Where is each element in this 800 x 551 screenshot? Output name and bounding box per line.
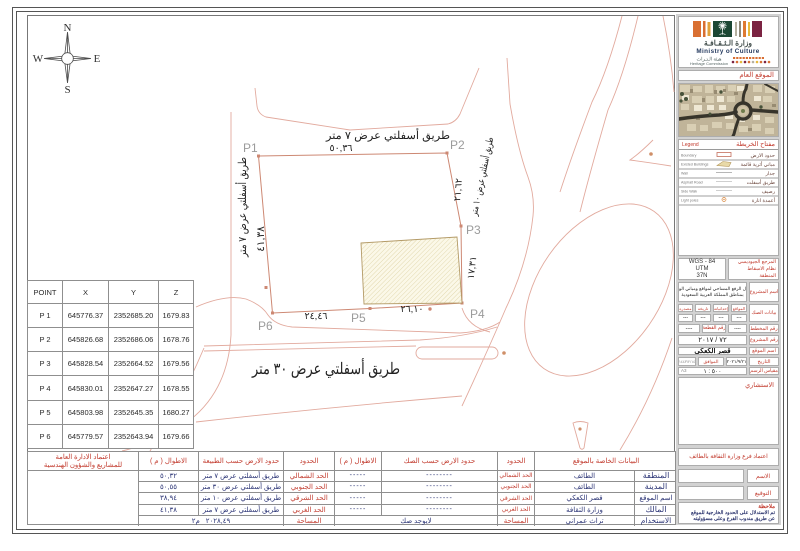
svg-text:Wall: Wall (681, 172, 688, 176)
svg-text:Ministry of Culture: Ministry of Culture (696, 48, 759, 55)
svg-text:Asphalt Road: Asphalt Road (681, 181, 703, 185)
svg-text:Boundary: Boundary (681, 154, 697, 158)
svg-text:أعمدة انارة: أعمدة انارة (752, 196, 776, 204)
svg-text:طريق أسفلتي عرض ١٠ متر: طريق أسفلتي عرض ١٠ متر (467, 135, 497, 217)
svg-text:جدار: جدار (764, 171, 775, 177)
svg-text:٢٦,١٠: ٢٦,١٠ (400, 304, 423, 315)
svg-text:Existed Buildings: Existed Buildings (681, 163, 709, 167)
svg-text:طريق أسفلت: طريق أسفلت (747, 178, 775, 186)
svg-text:P4: P4 (470, 307, 485, 321)
svg-text:١٧,٣١: ١٧,٣١ (466, 256, 480, 280)
svg-text:N: N (64, 22, 72, 34)
svg-text:طريق أسفلتي عرض ٧ متر: طريق أسفلتي عرض ٧ متر (235, 157, 249, 258)
svg-text:P3: P3 (466, 223, 481, 237)
svg-text:S: S (64, 84, 70, 96)
svg-text:٤١,٣٨: ٤١,٣٨ (255, 226, 267, 252)
svg-text:وزارة الـثـقـافـة: وزارة الـثـقـافـة (704, 39, 752, 49)
svg-text:P2: P2 (450, 138, 465, 152)
svg-text:E: E (94, 53, 101, 65)
svg-text:W: W (33, 53, 44, 65)
svg-text:٥٠,٣٦: ٥٠,٣٦ (329, 143, 352, 154)
svg-text:حدود الارض: حدود الارض (751, 153, 775, 159)
svg-text:Light poles: Light poles (681, 199, 699, 203)
svg-text:طريق أسفلتي عرض ٧ متر: طريق أسفلتي عرض ٧ متر (325, 128, 450, 142)
svg-text:Side Walk: Side Walk (681, 190, 697, 194)
svg-text:P1: P1 (243, 141, 258, 155)
svg-text:مباني أثرية قائمة: مباني أثرية قائمة (740, 160, 775, 168)
svg-text:P5: P5 (351, 311, 366, 325)
svg-text:Heritage Commission: Heritage Commission (690, 61, 728, 66)
svg-text:P6: P6 (258, 319, 273, 333)
svg-text:٢١,٦٢: ٢١,٦٢ (452, 178, 465, 202)
svg-text:طريق أسفلتي عرض ٣٠ متر: طريق أسفلتي عرض ٣٠ متر (251, 358, 400, 378)
svg-text:رصيف: رصيف (762, 189, 776, 195)
svg-text:٢٤,٤٦: ٢٤,٤٦ (304, 311, 327, 322)
